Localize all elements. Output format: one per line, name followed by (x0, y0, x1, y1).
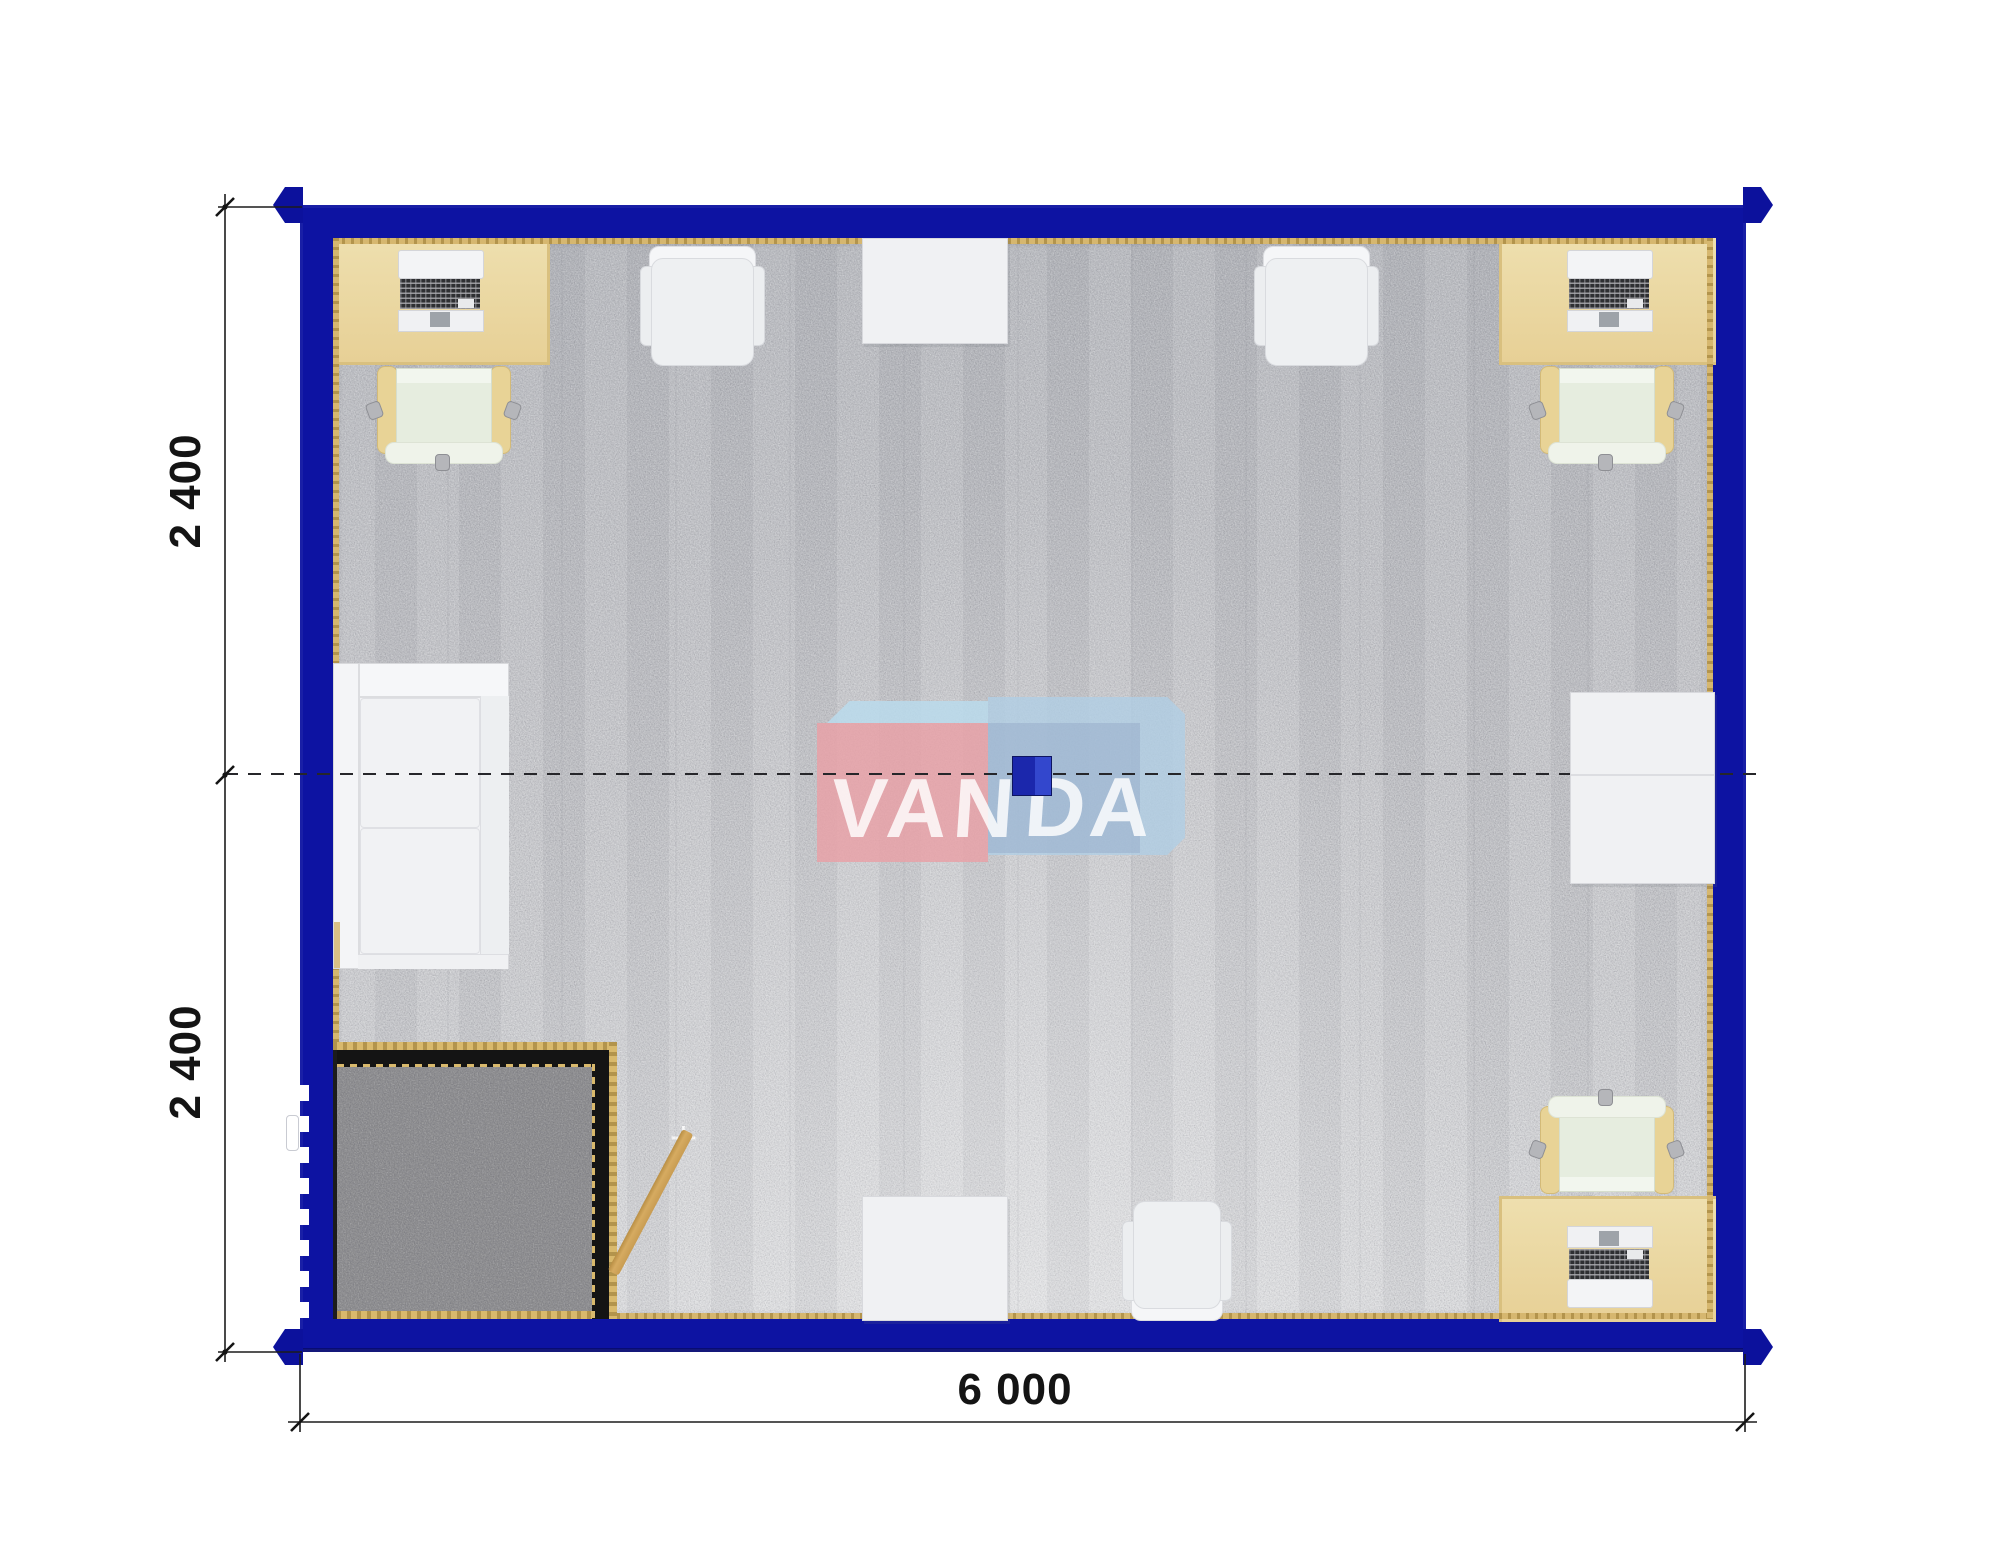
sofa-base (358, 954, 508, 969)
vanda-logo-text-left: VAN (828, 766, 1023, 850)
vanda-logo-pink-box-top (827, 701, 988, 723)
sofa-armrest (334, 664, 508, 698)
floor-trim-top (333, 238, 1713, 244)
mat-trim (609, 1042, 617, 1319)
table-seam (1571, 774, 1714, 776)
entry-mat-carpet (337, 1067, 592, 1311)
laptop-touchpad (430, 312, 450, 327)
office-chair-top-left (377, 366, 509, 462)
chair-seat (396, 368, 492, 450)
mat-stitch (337, 1064, 595, 1067)
laptop-bottom-right (1567, 1228, 1651, 1308)
corner-casting-top-right (1743, 187, 1773, 223)
office-chair-bottom-right (1540, 1098, 1672, 1194)
mat-frame (333, 1050, 609, 1064)
chair-seat (651, 258, 754, 366)
exterior-door-handle (286, 1115, 299, 1151)
ceiling-lamp (1013, 757, 1051, 795)
dimension-label-module-bottom: 2 400 (161, 1004, 211, 1119)
desk-top-left (333, 238, 550, 365)
laptop-screen (1567, 1279, 1653, 1308)
office-chair-top-right (1540, 366, 1672, 462)
chair-caster (1598, 1089, 1613, 1106)
chair-caster (435, 454, 450, 471)
side-table-top (862, 238, 1008, 344)
sofa-cushion (360, 698, 480, 828)
laptop-top-left (398, 250, 482, 330)
sofa-front-edge (480, 696, 509, 954)
laptop-notch (1627, 299, 1643, 308)
chair-seat (1559, 1110, 1655, 1192)
side-table-right (1570, 692, 1715, 884)
laptop-top-right (1567, 250, 1651, 330)
corner-casting-top-left (273, 187, 303, 223)
side-table-bottom (862, 1196, 1008, 1321)
mat-trim (333, 1042, 617, 1050)
laptop-notch (458, 299, 474, 308)
visitor-chair-top-right (1254, 246, 1377, 367)
chair-seat (1265, 258, 1368, 366)
chair-caster (1598, 454, 1613, 471)
dimension-label-module-top: 2 400 (161, 433, 211, 548)
container-wall-frame: VAN DA (300, 205, 1746, 1352)
corner-casting-bottom-left (273, 1329, 303, 1365)
corner-sofa (333, 663, 509, 969)
visitor-chair-bottom (1122, 1200, 1230, 1321)
sofa-wood-frame (334, 922, 340, 968)
corner-casting-bottom-right (1743, 1329, 1773, 1365)
floor-carpet: VAN DA (333, 238, 1713, 1319)
laptop-touchpad (1599, 1231, 1619, 1246)
laptop-screen (398, 250, 484, 279)
desk-bottom-right (1499, 1196, 1716, 1322)
mat-frame (333, 1050, 337, 1319)
mat-stitch (337, 1311, 592, 1319)
laptop-notch (1627, 1250, 1643, 1259)
floor-plan-canvas: 2 400 2 400 6 000 (0, 0, 2000, 1561)
chair-seat (1133, 1201, 1221, 1309)
mat-stitch (592, 1064, 595, 1319)
module-joint-dashed-line (225, 773, 1758, 775)
desk-top-right (1499, 238, 1716, 365)
mat-frame (595, 1050, 609, 1319)
entry-mat (333, 1042, 617, 1319)
laptop-touchpad (1599, 312, 1619, 327)
sofa-cushion (360, 828, 480, 954)
chair-seat (1559, 368, 1655, 450)
wall-door-dashes (300, 1085, 309, 1318)
visitor-chair-top-left (640, 246, 763, 367)
dimension-label-width: 6 000 (905, 1365, 1125, 1415)
door-leaf (608, 1129, 694, 1276)
laptop-screen (1567, 250, 1653, 279)
